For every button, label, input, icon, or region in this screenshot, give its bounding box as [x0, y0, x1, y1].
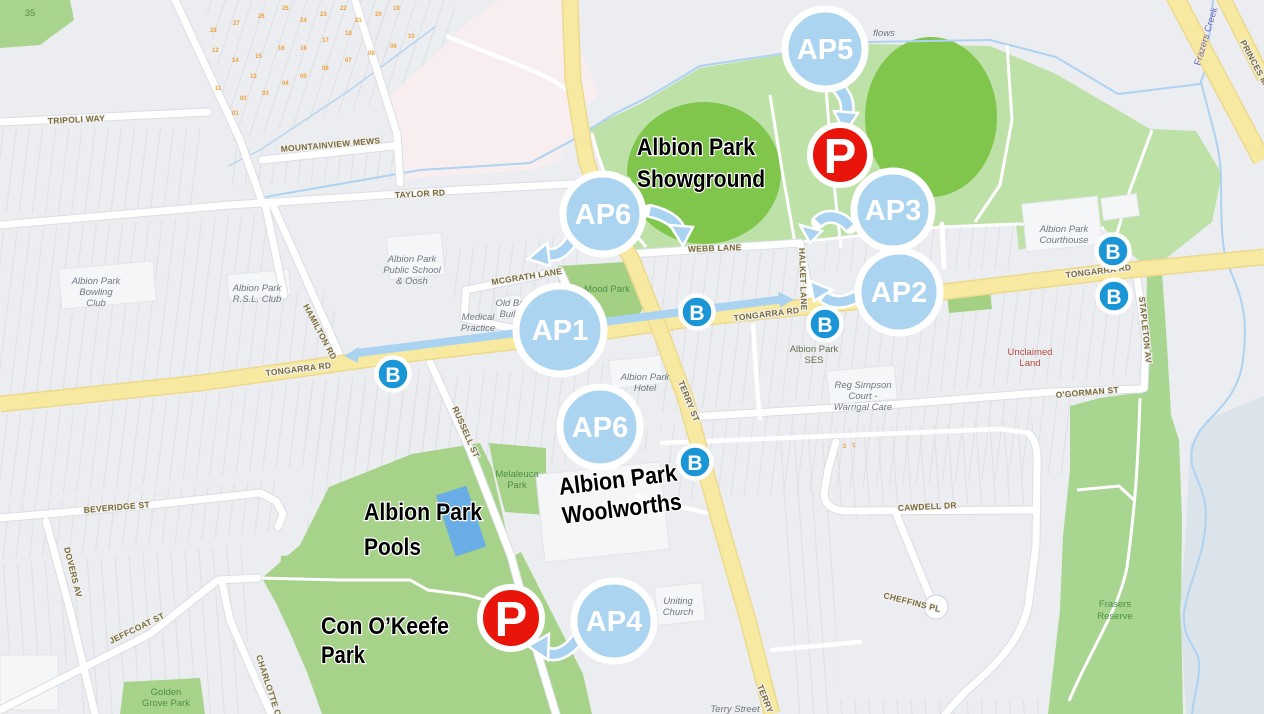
- svg-text:Reserve: Reserve: [1097, 611, 1132, 622]
- svg-text:Grove Park: Grove Park: [142, 698, 190, 709]
- svg-text:14: 14: [232, 58, 239, 64]
- svg-text:B: B: [689, 302, 704, 325]
- svg-text:05: 05: [300, 74, 307, 80]
- svg-text:Court -: Court -: [848, 391, 877, 402]
- svg-text:AP6: AP6: [575, 199, 631, 231]
- svg-text:AP1: AP1: [532, 315, 588, 347]
- svg-text:Park: Park: [321, 642, 366, 669]
- svg-text:B: B: [1106, 286, 1121, 309]
- svg-text:21: 21: [355, 18, 362, 24]
- svg-text:02: 02: [240, 96, 247, 102]
- svg-text:Unclaimed: Unclaimed: [1008, 347, 1053, 358]
- svg-text:& Oosh: & Oosh: [396, 276, 428, 287]
- svg-text:B: B: [687, 452, 702, 475]
- svg-text:Medical: Medical: [462, 312, 496, 323]
- svg-text:10: 10: [408, 34, 415, 40]
- svg-text:Bowling: Bowling: [79, 287, 113, 298]
- svg-text:Albion Park: Albion Park: [71, 276, 122, 287]
- svg-text:Club: Club: [86, 298, 106, 309]
- svg-text:Showground: Showground: [637, 166, 765, 193]
- svg-text:19: 19: [393, 6, 400, 12]
- svg-text:04: 04: [282, 81, 289, 87]
- svg-text:16: 16: [300, 46, 307, 52]
- svg-text:AP3: AP3: [865, 195, 921, 227]
- svg-text:28: 28: [210, 28, 217, 34]
- svg-text:Con O’Keefe: Con O’Keefe: [321, 613, 449, 640]
- svg-text:23: 23: [320, 12, 327, 18]
- svg-text:07: 07: [345, 58, 352, 64]
- svg-text:06: 06: [322, 66, 329, 72]
- svg-text:24: 24: [300, 18, 307, 24]
- svg-text:16: 16: [278, 46, 285, 52]
- svg-text:12: 12: [212, 48, 219, 54]
- svg-text:13: 13: [250, 74, 257, 80]
- svg-text:27: 27: [233, 21, 240, 27]
- svg-text:AP6: AP6: [572, 412, 628, 444]
- svg-text:Hotel: Hotel: [634, 383, 657, 394]
- svg-text:Frasers: Frasers: [1099, 599, 1131, 610]
- svg-text:Albion Park: Albion Park: [637, 134, 756, 161]
- svg-text:17: 17: [322, 38, 329, 44]
- svg-text:Pools: Pools: [364, 534, 421, 561]
- svg-text:Terry Street: Terry Street: [710, 704, 760, 714]
- svg-text:Uniting: Uniting: [663, 596, 693, 607]
- svg-text:R.S.L. Club: R.S.L. Club: [233, 294, 282, 305]
- svg-text:Albion Park: Albion Park: [790, 344, 839, 355]
- svg-text:Reg Simpson: Reg Simpson: [834, 380, 891, 391]
- svg-text:B: B: [817, 314, 832, 337]
- svg-text:AP5: AP5: [797, 34, 853, 66]
- svg-text:22: 22: [340, 6, 347, 12]
- svg-text:09: 09: [390, 44, 397, 50]
- svg-text:B: B: [385, 364, 400, 387]
- svg-text:Albion Park: Albion Park: [620, 372, 671, 383]
- svg-text:15: 15: [255, 54, 262, 60]
- svg-text:SES: SES: [804, 355, 823, 366]
- svg-text:08: 08: [368, 51, 375, 57]
- svg-text:26: 26: [258, 14, 265, 20]
- svg-text:Church: Church: [663, 607, 694, 618]
- svg-text:Albion Park: Albion Park: [364, 499, 483, 526]
- svg-text:20: 20: [375, 12, 382, 18]
- svg-text:B: B: [1105, 241, 1120, 264]
- svg-text:AP2: AP2: [871, 277, 927, 309]
- svg-text:Courthouse: Courthouse: [1039, 235, 1088, 246]
- svg-text:03: 03: [262, 91, 269, 97]
- svg-text:11: 11: [215, 86, 222, 92]
- svg-text:01: 01: [232, 111, 239, 117]
- svg-text:P: P: [495, 593, 528, 647]
- svg-text:WEBB LANE: WEBB LANE: [688, 242, 742, 254]
- svg-text:Albion Park: Albion Park: [232, 283, 283, 294]
- svg-text:Park: Park: [507, 480, 527, 491]
- svg-text:flows: flows: [873, 28, 895, 39]
- svg-text:Golden: Golden: [151, 687, 182, 698]
- svg-text:18: 18: [345, 31, 352, 37]
- svg-text:Warrigal Care: Warrigal Care: [834, 402, 892, 413]
- svg-text:25: 25: [282, 6, 289, 12]
- svg-text:Public School: Public School: [383, 265, 441, 276]
- svg-text:Mood Park: Mood Park: [584, 284, 630, 295]
- svg-text:Albion Park: Albion Park: [1039, 224, 1090, 235]
- svg-text:AP4: AP4: [586, 606, 642, 638]
- svg-text:P: P: [824, 130, 857, 184]
- svg-text:Melaleuca: Melaleuca: [495, 469, 539, 480]
- svg-text:Land: Land: [1019, 358, 1040, 369]
- svg-text:35: 35: [25, 8, 36, 19]
- svg-text:Albion Park: Albion Park: [387, 254, 438, 265]
